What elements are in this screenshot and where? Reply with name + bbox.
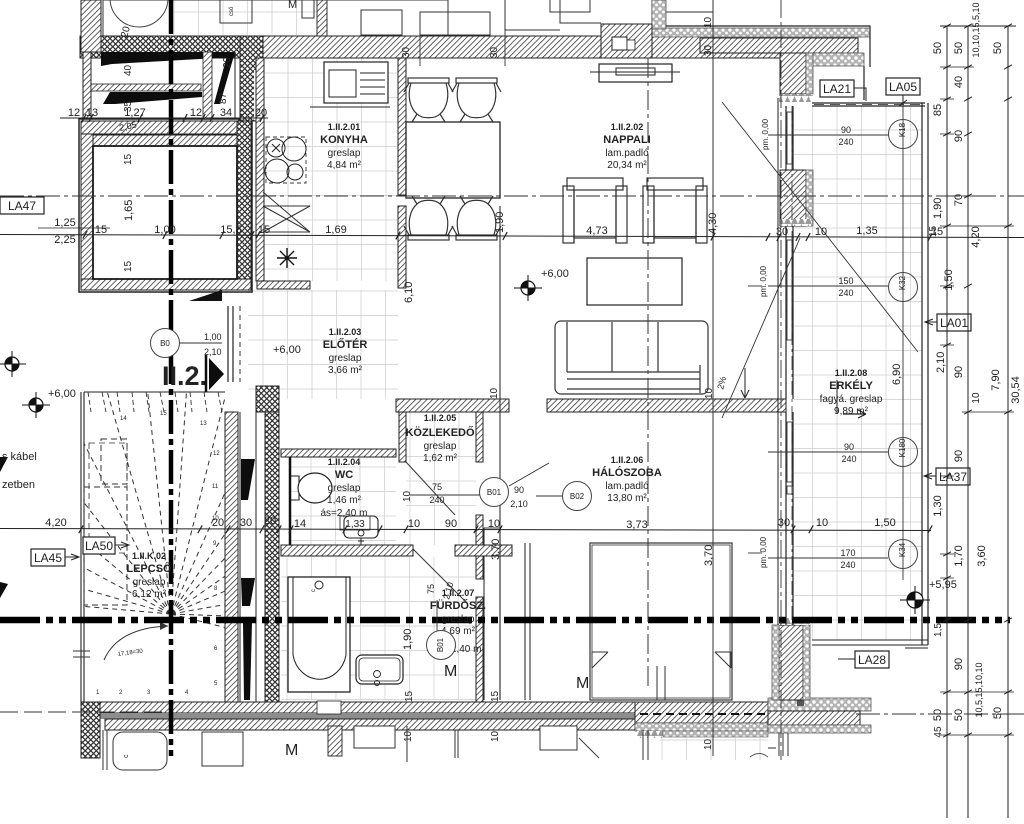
svg-text:90: 90	[844, 442, 854, 452]
svg-text:1,90: 1,90	[494, 212, 506, 233]
svg-text:90: 90	[514, 485, 524, 495]
svg-text:70: 70	[953, 194, 965, 206]
svg-text:lam.padló: lam.padló	[605, 481, 649, 492]
svg-text:240: 240	[840, 560, 855, 570]
svg-text:20: 20	[222, 56, 233, 68]
svg-text:K34: K34	[898, 542, 907, 557]
svg-text:15: 15	[928, 225, 939, 237]
svg-text:12: 12	[213, 451, 220, 457]
svg-text:30: 30	[489, 46, 500, 58]
svg-text:3,66 m²: 3,66 m²	[328, 365, 363, 376]
svg-text:LA21: LA21	[823, 82, 851, 96]
svg-text:M: M	[285, 742, 298, 759]
svg-text:1,5: 1,5	[933, 623, 944, 637]
svg-text:1.II.K.02: 1.II.K.02	[132, 551, 166, 561]
svg-text:+6,00: +6,00	[273, 344, 301, 356]
svg-text:10: 10	[815, 226, 827, 238]
svg-text:6,10: 6,10	[403, 282, 415, 303]
svg-text:90: 90	[953, 130, 965, 142]
svg-text:1.II.2.04: 1.II.2.04	[328, 457, 361, 467]
svg-text:30: 30	[401, 46, 412, 58]
svg-text:40: 40	[953, 76, 965, 88]
svg-text:greslap: greslap	[424, 441, 457, 452]
svg-text:1,46 m²: 1,46 m²	[327, 495, 362, 506]
svg-text:13,80 m²: 13,80 m²	[607, 493, 647, 504]
svg-text:1,62 m²: 1,62 m²	[423, 453, 458, 464]
svg-text:greslap: greslap	[328, 483, 361, 494]
svg-text:10: 10	[971, 392, 982, 404]
svg-text:1,35: 1,35	[856, 225, 877, 237]
svg-text:50: 50	[953, 42, 965, 54]
svg-text:20: 20	[264, 515, 276, 527]
svg-text:20: 20	[255, 107, 267, 119]
svg-text:30,54: 30,54	[1010, 376, 1022, 404]
svg-text:50: 50	[992, 707, 1004, 719]
svg-text:FÜRDŐSZ.: FÜRDŐSZ.	[430, 599, 486, 612]
svg-text:LA37: LA37	[939, 470, 967, 484]
svg-text:lam.padló: lam.padló	[605, 148, 649, 159]
svg-text:1.II.2.01: 1.II.2.01	[328, 122, 361, 132]
svg-text:II.2.: II.2.	[162, 361, 207, 391]
svg-text:1.II.2.08: 1.II.2.08	[835, 368, 868, 378]
svg-text:15: 15	[490, 690, 501, 702]
svg-text:10: 10	[703, 738, 714, 750]
svg-text:WC: WC	[335, 469, 353, 481]
svg-text:11: 11	[212, 484, 219, 490]
svg-text:20,34 m²: 20,34 m²	[607, 160, 647, 171]
svg-text:csö: csö	[229, 6, 235, 16]
svg-text:150: 150	[838, 276, 853, 286]
svg-text:10: 10	[703, 16, 714, 28]
svg-text:3,70: 3,70	[703, 545, 715, 566]
svg-text:40: 40	[123, 64, 134, 76]
svg-text:30: 30	[778, 517, 790, 529]
svg-text:+6,00: +6,00	[48, 388, 76, 400]
svg-text:90: 90	[445, 518, 457, 530]
svg-text:10: 10	[402, 490, 413, 502]
svg-text:50: 50	[992, 42, 1004, 54]
svg-text:M: M	[288, 0, 297, 11]
svg-text:10,10,15,5,10: 10,10,15,5,10	[971, 2, 981, 57]
svg-text:K18: K18	[898, 122, 907, 137]
svg-text:10: 10	[403, 730, 414, 742]
svg-text:9,89 m²: 9,89 m²	[834, 406, 869, 417]
svg-text:4,20: 4,20	[45, 517, 66, 529]
svg-text:LA05: LA05	[889, 80, 917, 94]
svg-text:10: 10	[489, 387, 500, 399]
svg-text:zetben: zetben	[2, 479, 35, 491]
svg-text:1.II.2.02: 1.II.2.02	[611, 122, 644, 132]
svg-text:ELŐTÉR: ELŐTÉR	[323, 338, 368, 351]
svg-text:1,90: 1,90	[402, 629, 414, 650]
svg-text:1,90: 1,90	[932, 198, 944, 219]
svg-text:10: 10	[816, 517, 828, 529]
svg-text:30: 30	[240, 517, 252, 529]
svg-text:B01: B01	[436, 637, 445, 652]
svg-text:B02: B02	[570, 492, 585, 501]
svg-text:HÁLÓSZOBA: HÁLÓSZOBA	[592, 466, 662, 479]
svg-text:c: c	[311, 589, 317, 592]
svg-text:6,12 m²: 6,12 m²	[132, 589, 167, 600]
svg-text:pm. 0,00: pm. 0,00	[761, 118, 770, 150]
svg-text:1,50: 1,50	[874, 517, 895, 529]
svg-text:15: 15	[404, 690, 415, 702]
svg-text:LA28: LA28	[858, 653, 886, 667]
svg-text:90: 90	[953, 658, 965, 670]
svg-text:10,5,15,10,10: 10,5,15,10,10	[974, 662, 984, 717]
svg-text:greslap: greslap	[328, 148, 361, 159]
svg-text:+6,00: +6,00	[541, 268, 569, 280]
svg-text:30: 30	[776, 226, 788, 238]
svg-text:75: 75	[432, 482, 442, 492]
svg-text:K32: K32	[898, 275, 907, 290]
svg-text:10: 10	[408, 518, 420, 530]
svg-text:170: 170	[840, 548, 855, 558]
svg-text:240: 240	[841, 454, 856, 464]
svg-text:1,65: 1,65	[123, 200, 135, 221]
svg-text:35: 35	[123, 100, 134, 112]
svg-text:3,73: 3,73	[626, 519, 647, 531]
svg-text:240: 240	[838, 137, 853, 147]
svg-text:greslap: greslap	[133, 577, 166, 588]
svg-text:M: M	[444, 663, 457, 680]
svg-text:M: M	[576, 675, 589, 692]
svg-text:NAPPALI: NAPPALI	[603, 134, 650, 146]
svg-text:1,30: 1,30	[932, 495, 944, 516]
svg-text:2,10: 2,10	[510, 499, 528, 509]
svg-text:14: 14	[120, 416, 127, 422]
svg-text:B0: B0	[160, 339, 170, 348]
svg-text:13: 13	[200, 421, 207, 427]
svg-text:10: 10	[488, 518, 500, 530]
svg-text:1,69: 1,69	[325, 224, 346, 236]
svg-text:12: 12	[190, 107, 202, 119]
svg-text:LA47: LA47	[8, 199, 36, 213]
svg-text:7,90: 7,90	[990, 369, 1002, 390]
svg-text:2,25: 2,25	[54, 234, 75, 246]
svg-text:4,84 m²: 4,84 m²	[327, 160, 362, 171]
svg-text:greslap: greslap	[329, 353, 362, 364]
svg-text:1,33: 1,33	[345, 519, 365, 530]
svg-text:3,70: 3,70	[490, 539, 502, 560]
svg-text:greslap: greslap	[442, 614, 475, 625]
svg-text:ERKÉLY: ERKÉLY	[829, 379, 873, 392]
svg-text:87: 87	[218, 92, 229, 104]
svg-text:90: 90	[953, 450, 965, 462]
svg-text:50: 50	[953, 709, 965, 721]
svg-text:6,90: 6,90	[891, 364, 903, 385]
svg-text:1,70: 1,70	[953, 545, 965, 566]
svg-text:15: 15	[258, 224, 270, 236]
svg-text:1.II.2.03: 1.II.2.03	[329, 327, 362, 337]
svg-text:1,25: 1,25	[54, 217, 75, 229]
svg-text:20: 20	[212, 517, 224, 529]
svg-text:c: c	[123, 754, 130, 758]
svg-text:50: 50	[932, 42, 944, 54]
svg-text:B01: B01	[487, 488, 502, 497]
svg-text:+5,95: +5,95	[929, 579, 957, 591]
svg-text:LA01: LA01	[940, 316, 968, 330]
svg-text:fagyá. greslap: fagyá. greslap	[820, 394, 883, 405]
svg-text:ás=2,40 m: ás=2,40 m	[321, 508, 368, 519]
svg-text:15,5: 15,5	[220, 224, 241, 236]
svg-text:10: 10	[704, 387, 715, 399]
svg-text:45: 45	[933, 726, 944, 738]
svg-text:240: 240	[429, 495, 444, 505]
svg-text:LA50: LA50	[85, 539, 113, 553]
svg-text:s kábel: s kábel	[2, 451, 37, 463]
svg-text:1,00: 1,00	[204, 332, 222, 342]
svg-text:1.II.2.05: 1.II.2.05	[424, 413, 457, 423]
svg-text:4,30: 4,30	[707, 213, 719, 234]
svg-text:K180: K180	[898, 438, 907, 457]
svg-text:30: 30	[703, 44, 714, 56]
svg-text:1.II.2.06: 1.II.2.06	[611, 455, 644, 465]
svg-text:LA45: LA45	[34, 551, 62, 565]
svg-text:240: 240	[838, 288, 853, 298]
svg-text:75: 75	[426, 584, 436, 594]
svg-text:85: 85	[932, 104, 944, 116]
svg-text:90: 90	[841, 125, 851, 135]
svg-text:2,10: 2,10	[935, 352, 947, 373]
svg-text:90: 90	[953, 366, 965, 378]
svg-text:15: 15	[123, 153, 134, 165]
svg-text:50: 50	[932, 709, 944, 721]
svg-text:34: 34	[220, 107, 232, 119]
svg-text:14: 14	[294, 518, 306, 530]
svg-text:4,73: 4,73	[586, 225, 607, 237]
svg-text:3,60: 3,60	[976, 545, 988, 566]
svg-text:LEPCSŐ: LEPCSŐ	[126, 562, 172, 575]
svg-text:10: 10	[490, 730, 501, 742]
svg-text:pm. 0,00: pm. 0,00	[759, 536, 768, 568]
svg-text:KÖZLEKEDŐ: KÖZLEKEDŐ	[405, 426, 475, 439]
svg-text:15: 15	[95, 224, 107, 236]
svg-text:4,20: 4,20	[970, 226, 982, 247]
svg-text:pm. 0,00: pm. 0,00	[759, 265, 768, 297]
svg-text:15: 15	[123, 260, 134, 272]
svg-text:KONYHA: KONYHA	[320, 134, 368, 146]
svg-text:2,10: 2,10	[204, 347, 222, 357]
svg-text:12: 12	[68, 107, 80, 119]
